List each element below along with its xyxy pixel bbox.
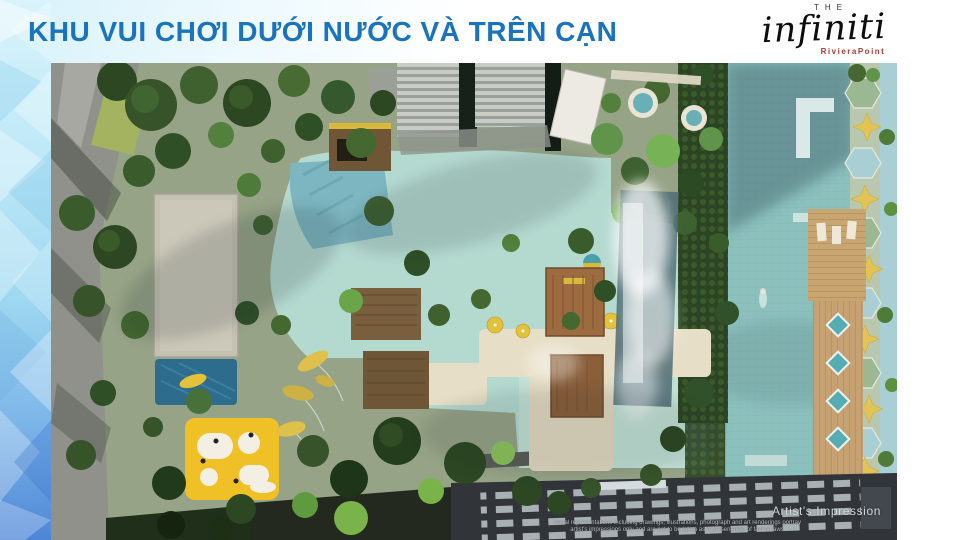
page-title: KHU VUI CHƠI DƯỚI NƯỚC VÀ TRÊN CẠN xyxy=(28,16,617,48)
brand-logo-name: infiniti xyxy=(735,9,912,49)
render-disclaimer-line2: artist's impressions only and are not to… xyxy=(467,527,887,534)
render-disclaimer-line1: Visual representations including drawing… xyxy=(467,520,887,527)
artists-impression-caption: Artist's Impression xyxy=(772,504,881,518)
accent-strip-lowpoly xyxy=(0,0,51,540)
brand-logo: THE infiniti RivieraPoint xyxy=(736,3,912,56)
aerial-render-image: Artist's Impression Visual representatio… xyxy=(51,63,897,540)
wooden-jetty xyxy=(808,209,866,301)
masterplan-aerial-render xyxy=(51,63,897,540)
daybed-boardwalk xyxy=(813,301,863,481)
presentation-slide: KHU VUI CHƠI DƯỚI NƯỚC VÀ TRÊN CẠN THE i… xyxy=(0,0,960,540)
render-disclaimer: Visual representations including drawing… xyxy=(467,520,887,534)
